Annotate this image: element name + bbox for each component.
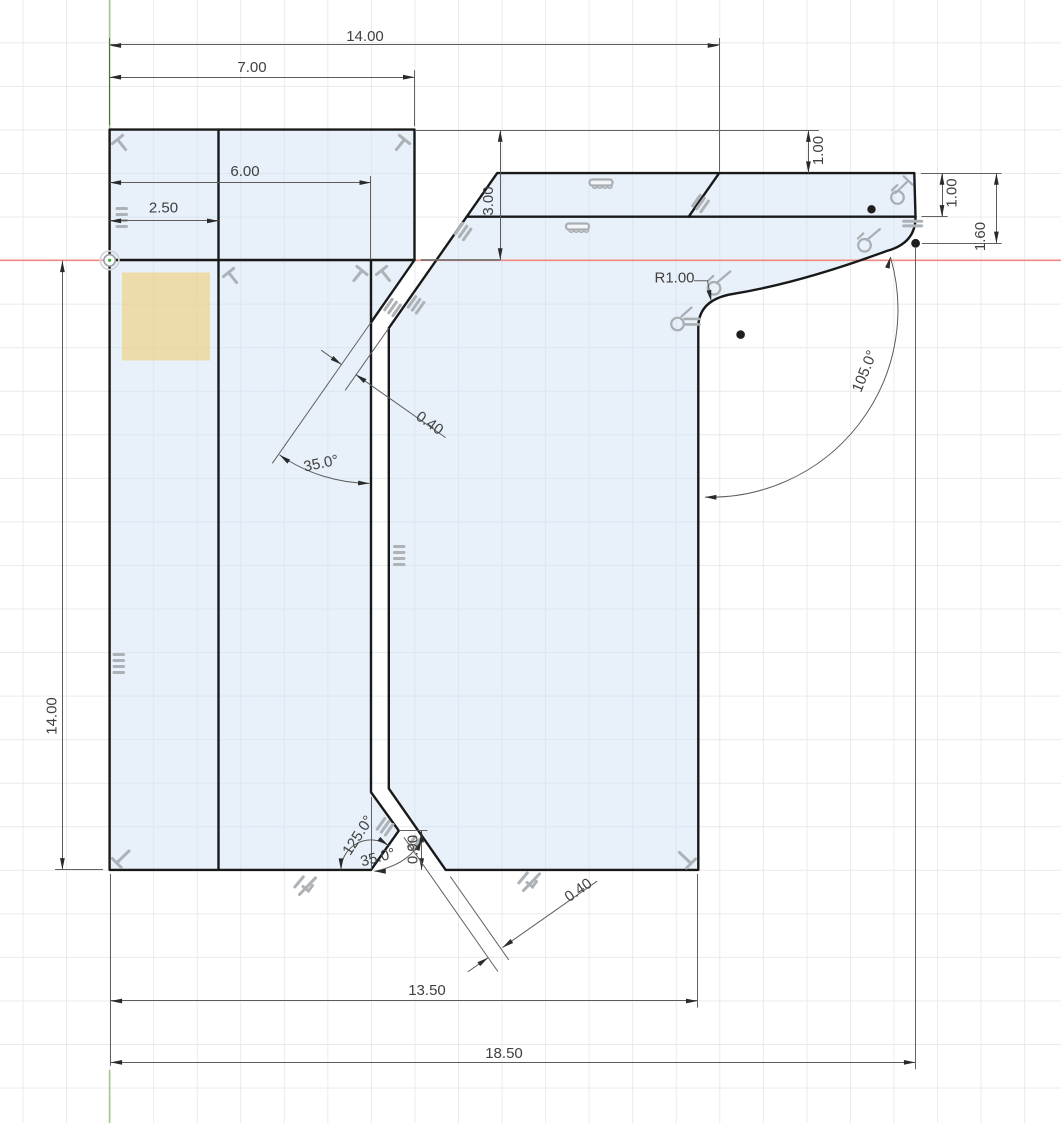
svg-text:1.60: 1.60 xyxy=(972,222,989,251)
svg-text:7.00: 7.00 xyxy=(237,59,266,76)
svg-text:R1.00: R1.00 xyxy=(654,270,694,287)
svg-text:6.00: 6.00 xyxy=(230,163,259,180)
svg-text:14.00: 14.00 xyxy=(346,28,384,45)
svg-text:14.00: 14.00 xyxy=(44,697,61,735)
svg-text:1.00: 1.00 xyxy=(810,136,827,165)
svg-text:18.50: 18.50 xyxy=(485,1045,523,1062)
svg-text:3.00: 3.00 xyxy=(480,186,497,215)
svg-text:13.50: 13.50 xyxy=(408,982,446,999)
svg-text:1.00: 1.00 xyxy=(944,178,961,207)
svg-text:2.50: 2.50 xyxy=(149,200,178,217)
